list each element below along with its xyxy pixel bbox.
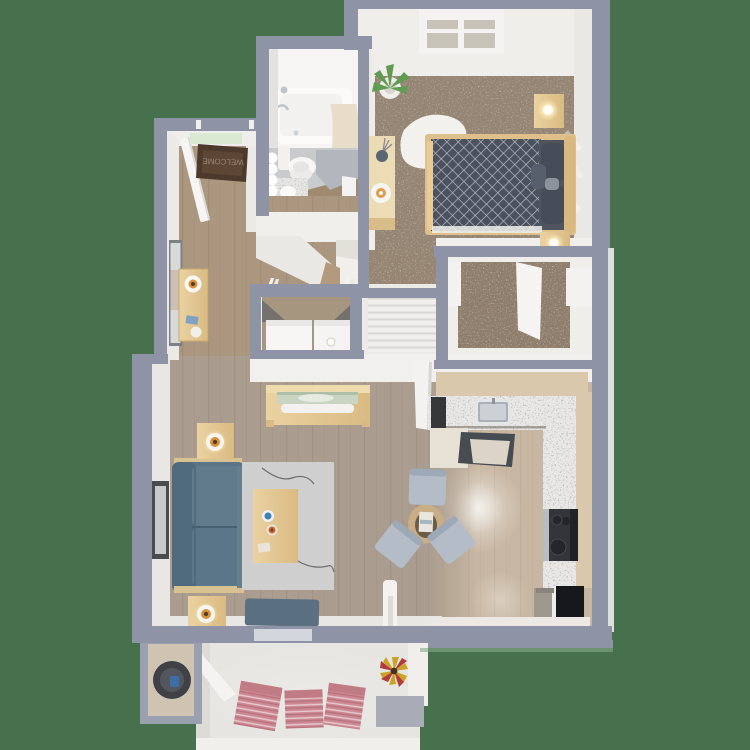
- svg-text:WELCOME: WELCOME: [202, 156, 244, 166]
